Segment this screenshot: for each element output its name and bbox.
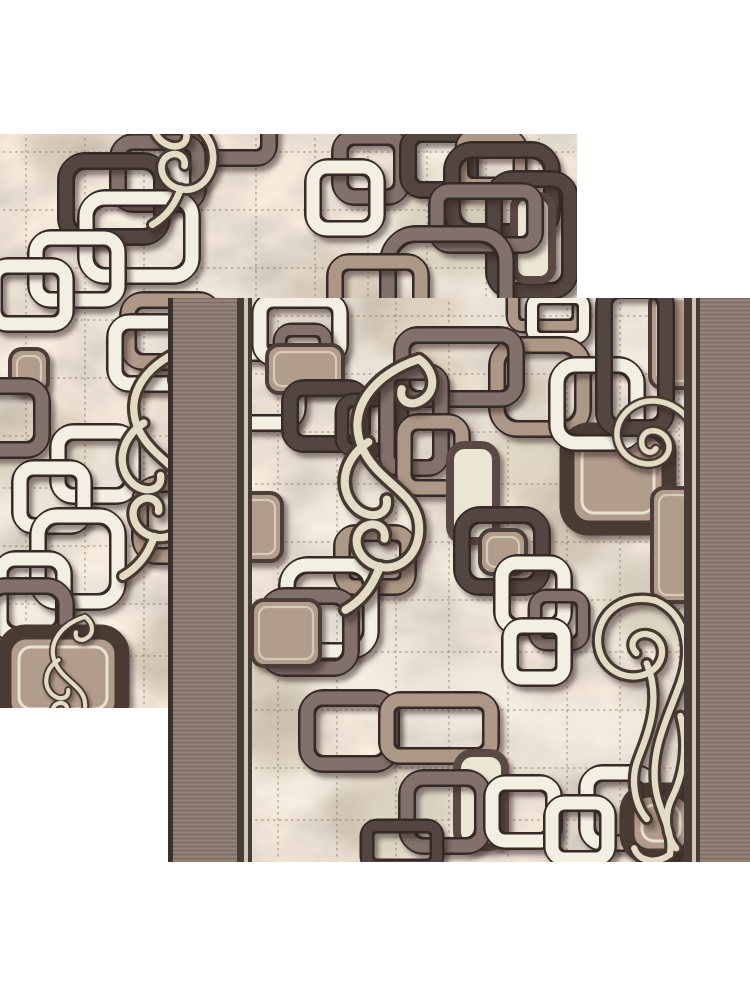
edge-band-right [684, 298, 750, 862]
carpet-field [204, 298, 742, 862]
carpet-motif-fl [252, 600, 320, 666]
edge-band-left [168, 298, 252, 862]
carpet-sample-bottom-right [168, 298, 750, 862]
carpet-sample-bottom-right-svg [168, 298, 750, 862]
product-image-canvas [0, 0, 750, 1000]
